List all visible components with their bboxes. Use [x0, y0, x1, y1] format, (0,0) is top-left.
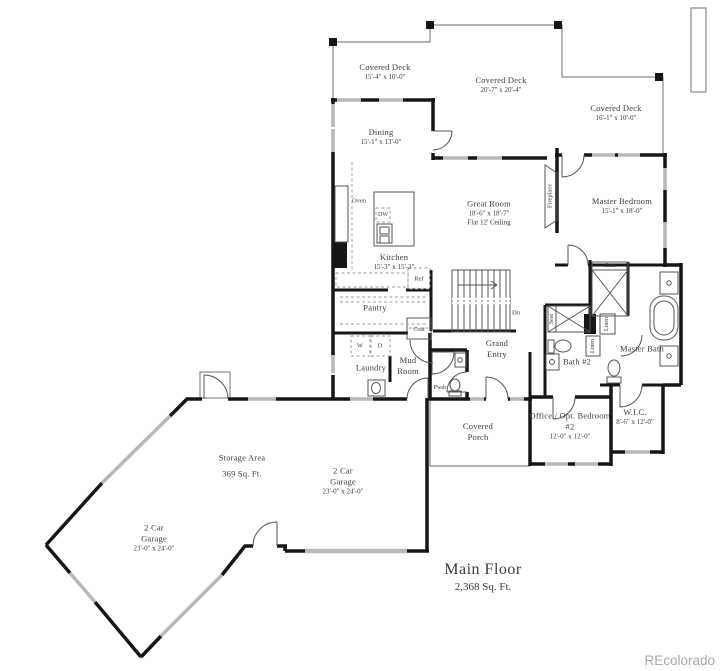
- exterior-walls: [46, 98, 681, 657]
- powder-door: [447, 372, 467, 392]
- toilet-master: [608, 360, 620, 376]
- floor-plan: Covered Deck 15'-4" x 10'-0" Covered Dec…: [0, 0, 720, 671]
- dining-deck-door: [433, 131, 452, 150]
- master-bedroom-door: [562, 155, 584, 177]
- kitchen-counter: [336, 273, 408, 287]
- deck-stair-stub: [691, 8, 706, 92]
- oven-tower: [335, 186, 348, 242]
- room-label-bath-2: Bath #2: [562, 356, 592, 367]
- room-label-grand-entry: Grand Entry: [475, 338, 519, 360]
- room-label-garage-right: 2 Car Garage 23'-0" x 24'-0": [320, 465, 366, 496]
- garage-storage-door: [253, 522, 277, 546]
- mudroom-garage-door: [407, 378, 428, 399]
- bedroom-hall-door: [568, 245, 588, 265]
- room-label-covered-deck-left: Covered Deck 15'-4" x 10'-0": [359, 62, 410, 82]
- fixture-label-dryer: D: [378, 343, 383, 350]
- stairs: [452, 270, 510, 332]
- fixture-label-linen-1: Linen: [604, 317, 610, 331]
- room-label-covered-deck-center: Covered Deck 20'-7" x 20'-4": [475, 75, 526, 95]
- fixture-label-powder: Pwdr: [434, 385, 447, 391]
- fixture-label-coat: Coat: [413, 327, 424, 333]
- fixture-label-fireplace: Fireplace: [547, 184, 554, 208]
- fixture-label-seat-master: Seat: [605, 263, 615, 269]
- room-label-pantry: Pantry: [363, 302, 386, 313]
- fixture-label-oven: Oven: [352, 198, 366, 205]
- room-label-kitchen: Kitchen 15'-3" x 15'-3": [374, 252, 415, 272]
- room-label-office: Office / Opt. Bedroom #2 12'-0" x 12'-0": [528, 410, 612, 441]
- plan-title: Main Floor 2,368 Sq. Ft.: [444, 561, 521, 593]
- powder-sink: [455, 353, 466, 367]
- fixture-label-washer: W: [357, 343, 363, 350]
- room-label-master-bath: Master Bath: [620, 343, 664, 354]
- vanity-1: [660, 272, 678, 294]
- room-label-great-room: Great Room 18'-6" x 18'-7" Flat 12' Ceil…: [467, 198, 511, 227]
- room-label-wic: W.I.C. 8'-6" x 12'-0": [616, 407, 653, 427]
- fixture-label-seat-bath2: Seat: [549, 314, 555, 324]
- front-door: [486, 377, 508, 399]
- fixture-label-linen-2: Linen: [590, 339, 596, 353]
- room-label-storage: Storage Area 369 Sq. Ft.: [219, 452, 266, 479]
- storage-entry-door: [204, 375, 228, 399]
- kitchen-cabinet-block: [334, 242, 347, 268]
- fixture-label-stairs-down: Dn: [512, 310, 520, 317]
- fixture-label-dishwasher: DW: [378, 212, 388, 218]
- room-label-master-bedroom: Master Bedroom 15'-1" x 18'-0": [591, 196, 653, 216]
- room-label-mud-room: Mud Room: [390, 355, 426, 377]
- room-label-laundry: Laundry: [356, 362, 386, 373]
- room-label-garage-left: 2 Car Garage 23'-0" x 24'-0": [131, 522, 177, 553]
- watermark: REcolorado: [644, 653, 715, 668]
- floor-area: 2,368 Sq. Ft.: [444, 581, 521, 593]
- room-label-dining: Dining 15'-1" x 13'-0": [361, 127, 402, 147]
- floor-plan-drawing: [0, 0, 720, 671]
- room-label-covered-porch: Covered Porch: [452, 421, 504, 443]
- fixture-label-refrigerator: Ref: [414, 276, 423, 283]
- toilet-powder: [450, 379, 460, 391]
- wic-door: [620, 385, 642, 407]
- powder-shower: [432, 352, 454, 374]
- floor-name: Main Floor: [444, 561, 521, 579]
- bath2-sink: [546, 354, 559, 370]
- toilet-bath2: [555, 340, 571, 352]
- room-label-covered-deck-right: Covered Deck 16'-1" x 10'-0": [590, 103, 641, 123]
